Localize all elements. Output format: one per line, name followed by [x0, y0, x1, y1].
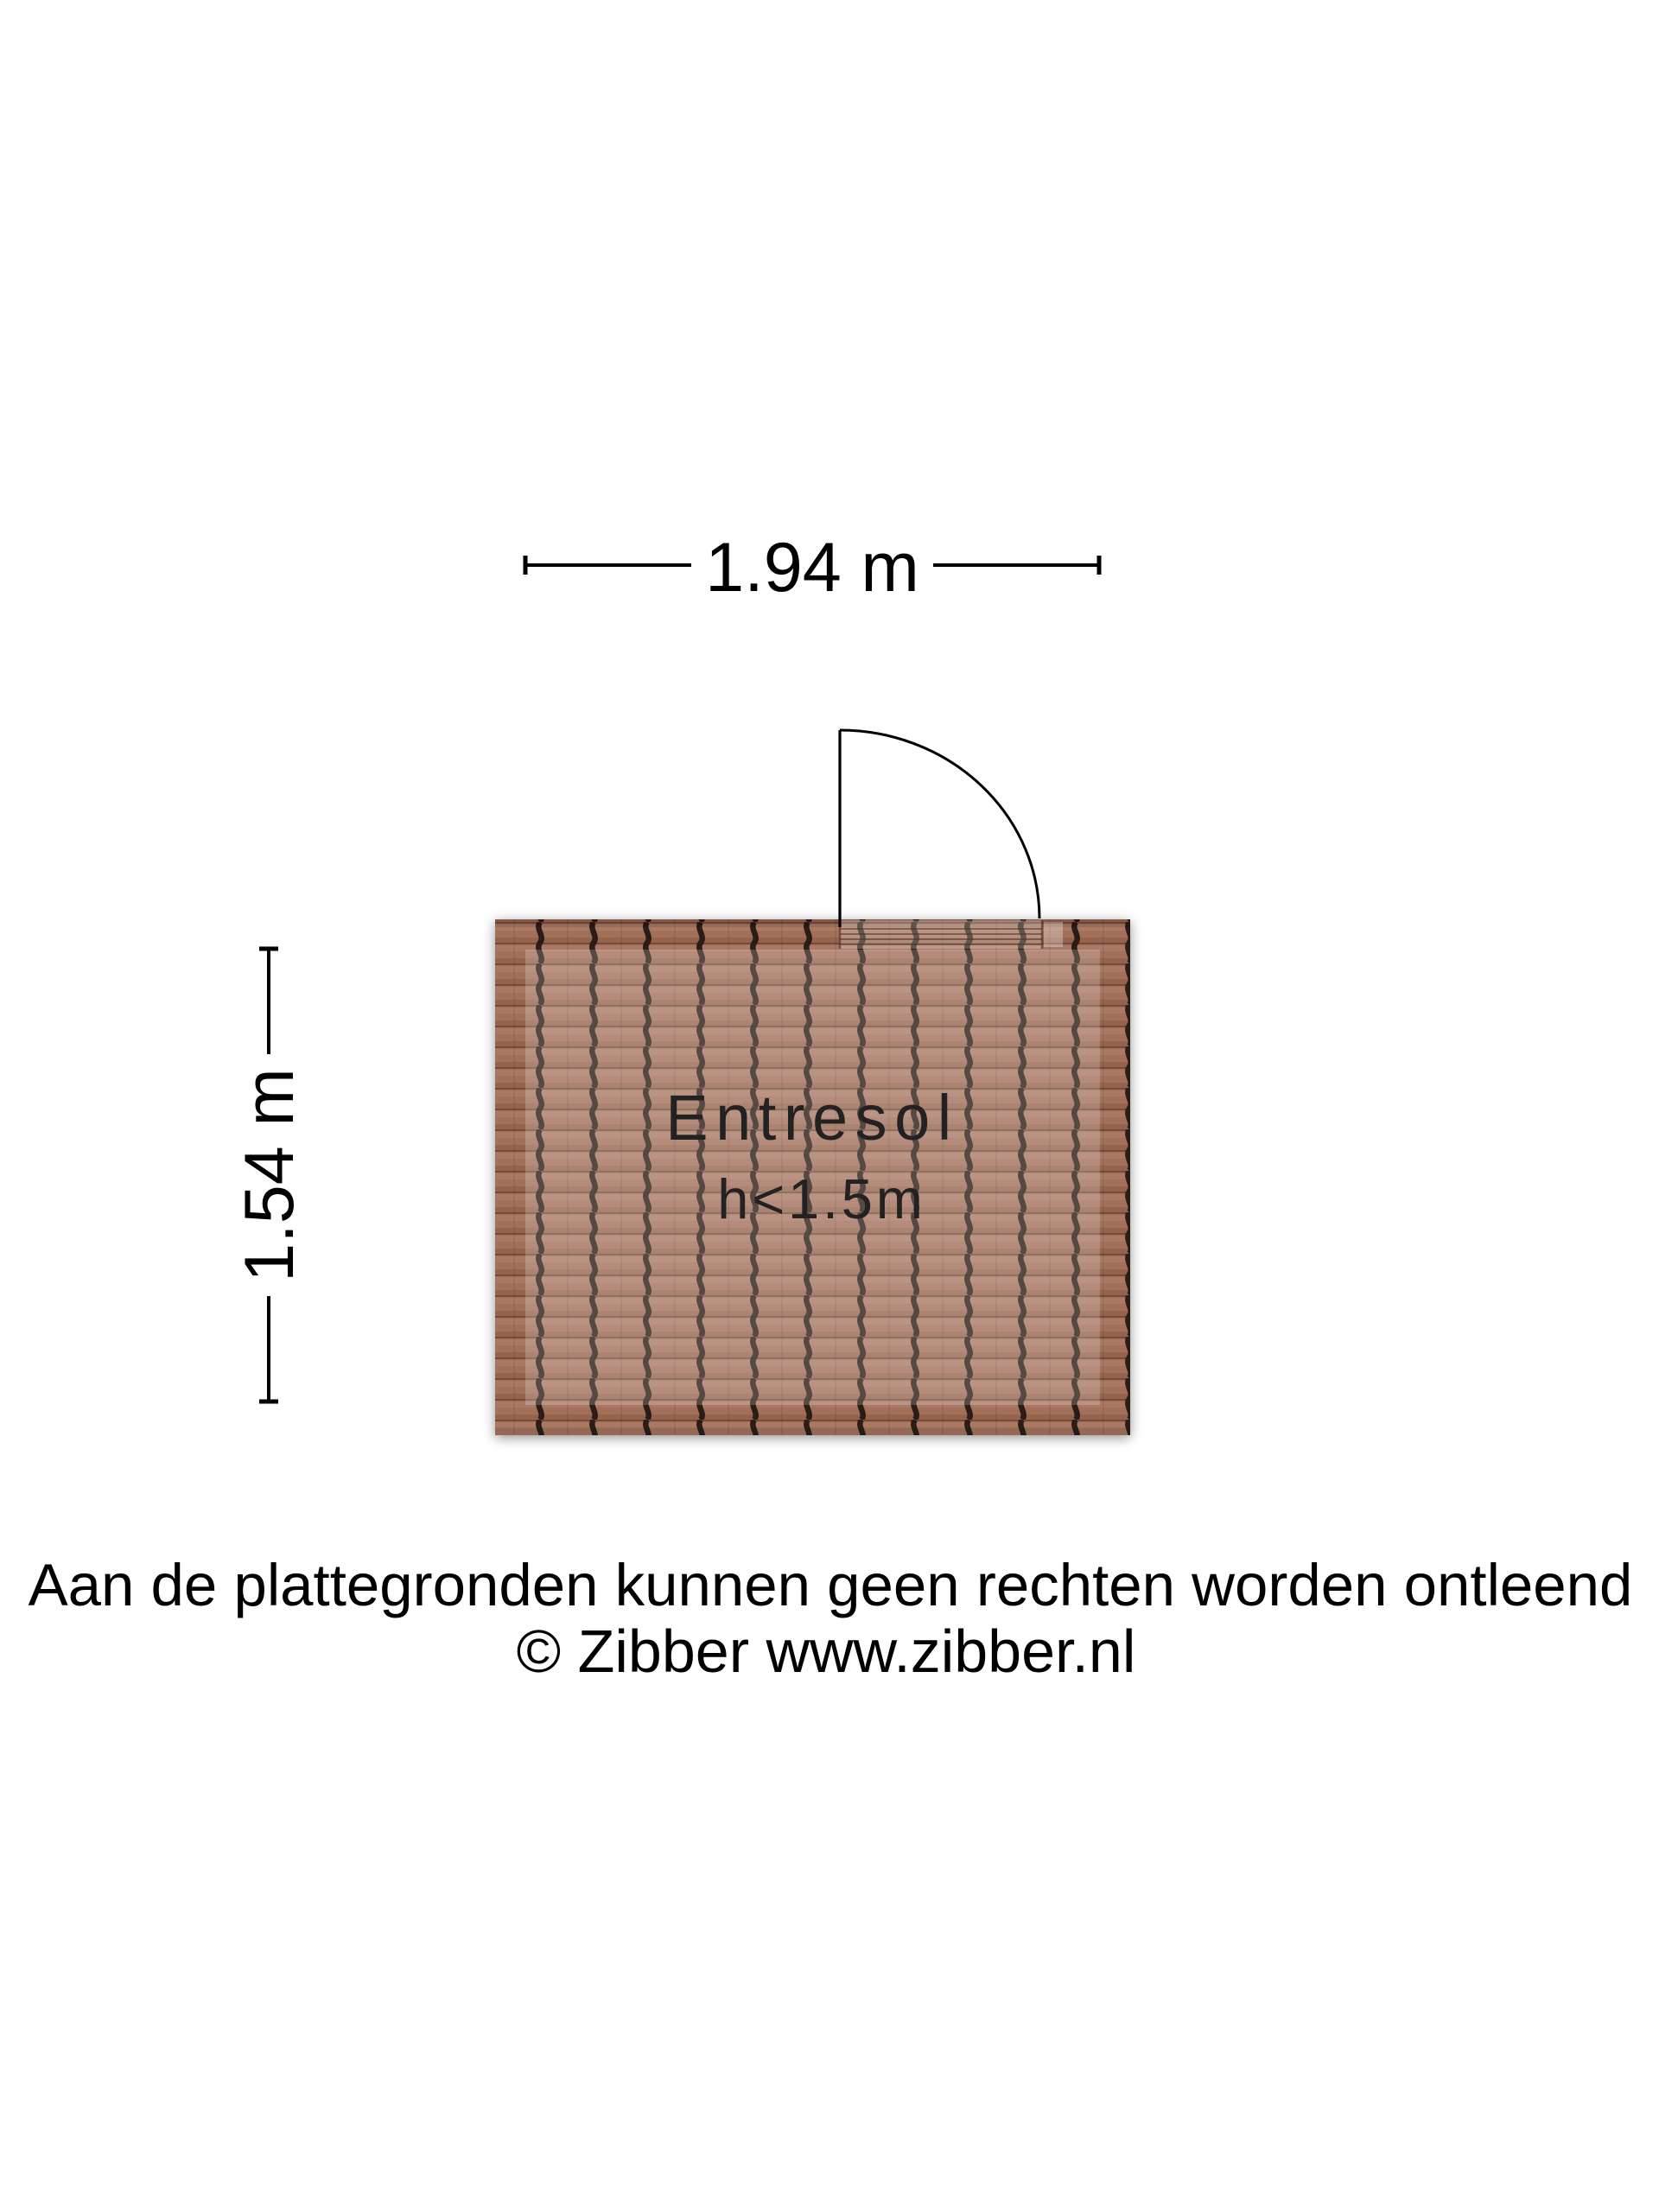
- svg-text:h<1.5m: h<1.5m: [717, 1167, 925, 1230]
- svg-text:1.54 m: 1.54 m: [231, 1068, 308, 1282]
- svg-text:Entresol: Entresol: [665, 1082, 958, 1154]
- svg-text:1.94 m: 1.94 m: [705, 529, 919, 607]
- svg-text:Aan de plattegronden kunnen ge: Aan de plattegronden kunnen geen rechten…: [29, 1552, 1633, 1618]
- svg-text:© Zibber www.zibber.nl: © Zibber www.zibber.nl: [517, 1618, 1136, 1685]
